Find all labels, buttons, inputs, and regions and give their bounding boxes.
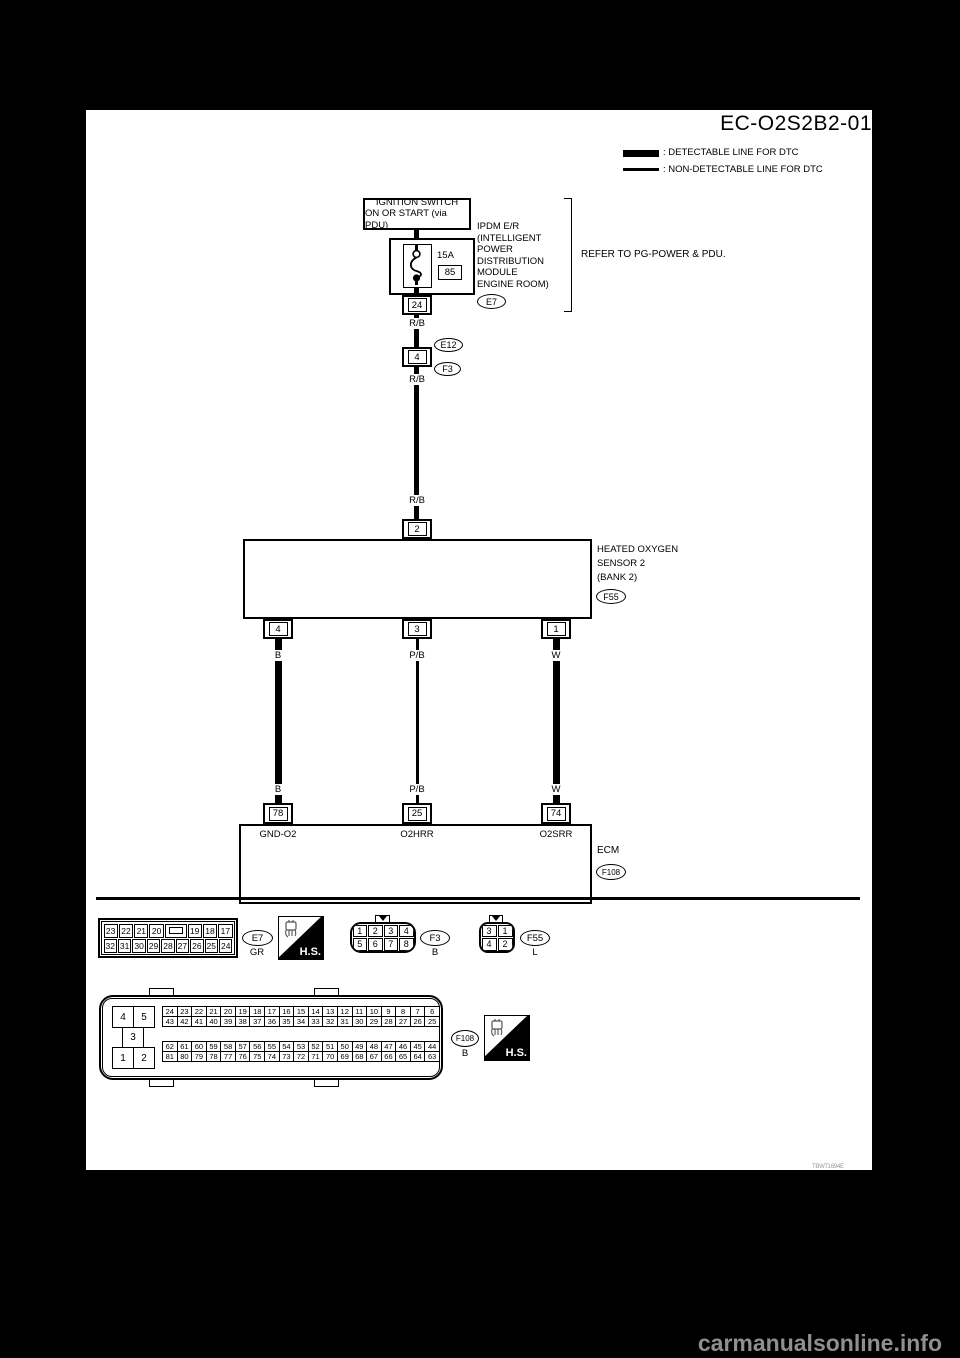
diagram-title: EC-O2S2B2-01 [690, 112, 872, 136]
hs-emblem: H.S. [278, 916, 324, 960]
sensor-pin-4: 4 [263, 619, 293, 639]
legend-detectable-line-swatch [623, 150, 659, 157]
pin-cell: 26 [410, 1016, 426, 1027]
pin-cell: 38 [235, 1016, 251, 1027]
sensor-name-line: SENSOR 2 [597, 557, 678, 571]
wire-pb [416, 639, 419, 804]
e7-pin-row-bottom: 323130292827262524 [103, 938, 233, 953]
pin-cell: 31 [337, 1016, 353, 1027]
pin-cell: 69 [337, 1051, 353, 1062]
pin-cell: 32 [104, 939, 117, 953]
pin-cell: 31 [118, 939, 131, 953]
f55-pin-row-top: 31 [481, 924, 513, 938]
connector-ref-f3: F3 [434, 362, 461, 376]
pin-cell: 6 [368, 938, 383, 951]
legend-detectable-label: : DETECTABLE LINE FOR DTC [663, 147, 798, 159]
pin-cell: 41 [191, 1016, 207, 1027]
f108-pin-row: 81807978777675747372717069686766656463 [163, 1051, 440, 1062]
pin-cell: 29 [147, 939, 160, 953]
pin-cell: 73 [279, 1051, 295, 1062]
pin-cell: 21 [134, 924, 148, 938]
pin-cell: 75 [249, 1051, 265, 1062]
pin-cell: 2 [498, 938, 513, 951]
connector-ref-f55: F55 [596, 589, 626, 604]
ignition-switch-box: IGNITION SWITCH ON OR START (via PDU) [363, 198, 471, 230]
f108-pin-row: 43424140393837363534333231302928272625 [163, 1016, 440, 1027]
pin-cell: 25 [424, 1016, 440, 1027]
pin-cell: 17 [218, 924, 232, 938]
wire-w [553, 639, 560, 804]
refer-bracket [564, 198, 572, 312]
connector-ref-e7: E7 [477, 294, 506, 309]
ecm-signal-gnd-o2: GND-O2 [260, 829, 297, 841]
pin-cell: 79 [191, 1051, 207, 1062]
ignition-line1: IGNITION SWITCH [376, 197, 458, 209]
pin-cell: 34 [293, 1016, 309, 1027]
pin-cell: 32 [322, 1016, 338, 1027]
ignition-line2: ON OR START (via PDU) [365, 208, 469, 231]
joint-terminal-4: 4 [402, 347, 432, 367]
legend-nondetectable-line-swatch [623, 168, 659, 171]
figure-code: TBWT1694E [812, 1164, 844, 1170]
ipdm-label-line: (INTELLIGENT [477, 233, 549, 245]
ipdm-box [389, 238, 475, 295]
connector-view-e7: 23222120191817 323130292827262524 [98, 918, 238, 958]
connector-ref-f108: F108 [596, 864, 626, 880]
fuse-icon [404, 245, 429, 285]
f3-ref-oval: F3 [420, 930, 450, 946]
ipdm-label-line: POWER [477, 244, 549, 256]
f108-left-pin: 2 [133, 1047, 155, 1069]
pin-cell: 78 [206, 1051, 222, 1062]
pin-cell: 1 [498, 925, 513, 938]
e7-pin-row-top: 23222120191817 [103, 923, 233, 938]
connector-view-f55: 31 42 [479, 922, 515, 953]
pin-cell: 64 [410, 1051, 426, 1062]
ecm-pin-25: 25 [402, 803, 432, 824]
wire-color-label: W [550, 784, 563, 795]
pin-cell: 3 [384, 925, 399, 938]
fuse-number-box: 85 [438, 265, 462, 280]
pin-cell: 81 [162, 1051, 178, 1062]
pin-cell: 63 [424, 1051, 440, 1062]
pin-cell: 30 [352, 1016, 368, 1027]
pin-cell: 23 [104, 924, 118, 938]
pin-cell: 28 [161, 939, 174, 953]
pin-cell: 7 [384, 938, 399, 951]
f3-color: B [432, 947, 438, 959]
connector-ref-e12: E12 [434, 338, 463, 352]
hs-emblem: H.S. [484, 1015, 530, 1061]
wire-color-label: B [273, 650, 283, 661]
pin-cell: 5 [353, 938, 368, 951]
pin-cell: 18 [203, 924, 217, 938]
wire-color-label: R/B [407, 495, 427, 506]
pin-cell: 74 [264, 1051, 280, 1062]
legend-nondetectable-label: : NON-DETECTABLE LINE FOR DTC [663, 164, 823, 176]
sensor-terminal-2: 2 [402, 519, 432, 539]
pin-cell: 67 [366, 1051, 382, 1062]
ipdm-label-line: DISTRIBUTION [477, 256, 549, 268]
pin-cell: 66 [381, 1051, 397, 1062]
fuse-box [403, 244, 432, 288]
f3-pin-row-bottom: 5678 [352, 938, 414, 952]
f108-color: B [462, 1048, 468, 1060]
ipdm-label-line: IPDM E/R [477, 221, 549, 233]
ecm-signal-o2hrr: O2HRR [400, 829, 433, 841]
f55-color: L [532, 947, 537, 959]
pin-cell: 39 [220, 1016, 236, 1027]
pin-cell: 76 [235, 1051, 251, 1062]
sensor-pin-1: 1 [541, 619, 571, 639]
sensor-name-block: HEATED OXYGEN SENSOR 2 (BANK 2) [597, 543, 678, 585]
refer-note: REFER TO PG-POWER & PDU. [581, 249, 726, 261]
pin-cell: 72 [293, 1051, 309, 1062]
pin-cell: 4 [399, 925, 414, 938]
pin-cell: 19 [188, 924, 202, 938]
pin-cell: 2 [368, 925, 383, 938]
pin-cell: 71 [308, 1051, 324, 1062]
wire-color-label: P/B [407, 650, 426, 661]
e7-color: GR [250, 947, 264, 959]
hand-connector-icon [281, 919, 301, 939]
f108-left-pin: 5 [133, 1006, 155, 1028]
ipdm-label-block: IPDM E/R (INTELLIGENT POWER DISTRIBUTION… [477, 221, 549, 290]
pin-cell: 35 [279, 1016, 295, 1027]
ecm-label: ECM [597, 845, 619, 857]
sensor-name-line: HEATED OXYGEN [597, 543, 678, 557]
pin-cell: 22 [119, 924, 133, 938]
pin-cell: 33 [308, 1016, 324, 1027]
wire-color-label: W [550, 650, 563, 661]
pin-cell: 36 [264, 1016, 280, 1027]
wire-color-label: R/B [407, 318, 427, 329]
watermark: carmanualsonline.info [620, 1330, 942, 1357]
pin-cell: 3 [482, 925, 497, 938]
f3-pin-row-top: 1234 [352, 924, 414, 938]
f108-bottom-tab [314, 1079, 339, 1087]
pin-cell: 26 [190, 939, 203, 953]
section-separator [96, 897, 860, 900]
wire-color-label: P/B [407, 784, 426, 795]
pin-cell: 70 [322, 1051, 338, 1062]
f55-ref-oval: F55 [520, 930, 550, 946]
f108-bottom-tab [149, 1079, 174, 1087]
pin-cell: 1 [353, 925, 368, 938]
wire-b [275, 639, 282, 804]
pin-cell: 37 [249, 1016, 265, 1027]
sensor-name-line: (BANK 2) [597, 571, 678, 585]
connector-view-f3: 1234 5678 [350, 922, 416, 953]
manual-page: EC-O2S2B2-01 : DETECTABLE LINE FOR DTC :… [0, 0, 960, 1358]
wire-color-label: B [273, 784, 283, 795]
sensor-box [243, 539, 592, 619]
ecm-pin-78: 78 [263, 803, 293, 824]
pin-cell: 77 [220, 1051, 236, 1062]
pin-cell: 68 [352, 1051, 368, 1062]
pin-cell: 30 [132, 939, 145, 953]
hand-connector-icon [487, 1018, 507, 1038]
f108-left-pin: 1 [112, 1047, 134, 1069]
pin-cell: 27 [176, 939, 189, 953]
ipdm-label-line: ENGINE ROOM) [477, 279, 549, 291]
ipdm-label-line: MODULE [477, 267, 549, 279]
pin-cell: 4 [482, 938, 497, 951]
ecm-pin-74: 74 [541, 803, 571, 824]
f108-ref-oval: F108 [451, 1030, 479, 1047]
pin-cell: 20 [149, 924, 163, 938]
pin-cell: 24 [219, 939, 232, 953]
pin-cell: 27 [395, 1016, 411, 1027]
e7-ref-oval: E7 [242, 930, 273, 946]
pin-cell: 80 [177, 1051, 193, 1062]
ecm-signal-o2srr: O2SRR [540, 829, 573, 841]
terminal-24: 24 [402, 295, 432, 315]
f108-left-pin: 3 [122, 1027, 144, 1048]
pin-cell: 40 [206, 1016, 222, 1027]
f55-pin-row-bottom: 42 [481, 938, 513, 952]
pin-cell-blank [165, 924, 187, 938]
pin-cell: 28 [381, 1016, 397, 1027]
sensor-pin-3: 3 [402, 619, 432, 639]
pin-cell: 25 [205, 939, 218, 953]
wire-color-label: R/B [407, 374, 427, 385]
pin-cell: 29 [366, 1016, 382, 1027]
pin-cell: 8 [399, 938, 414, 951]
fuse-rating: 15A [437, 250, 454, 262]
pin-cell: 65 [395, 1051, 411, 1062]
pin-cell: 43 [162, 1016, 178, 1027]
pin-cell: 42 [177, 1016, 193, 1027]
f108-left-pin: 4 [112, 1006, 134, 1028]
